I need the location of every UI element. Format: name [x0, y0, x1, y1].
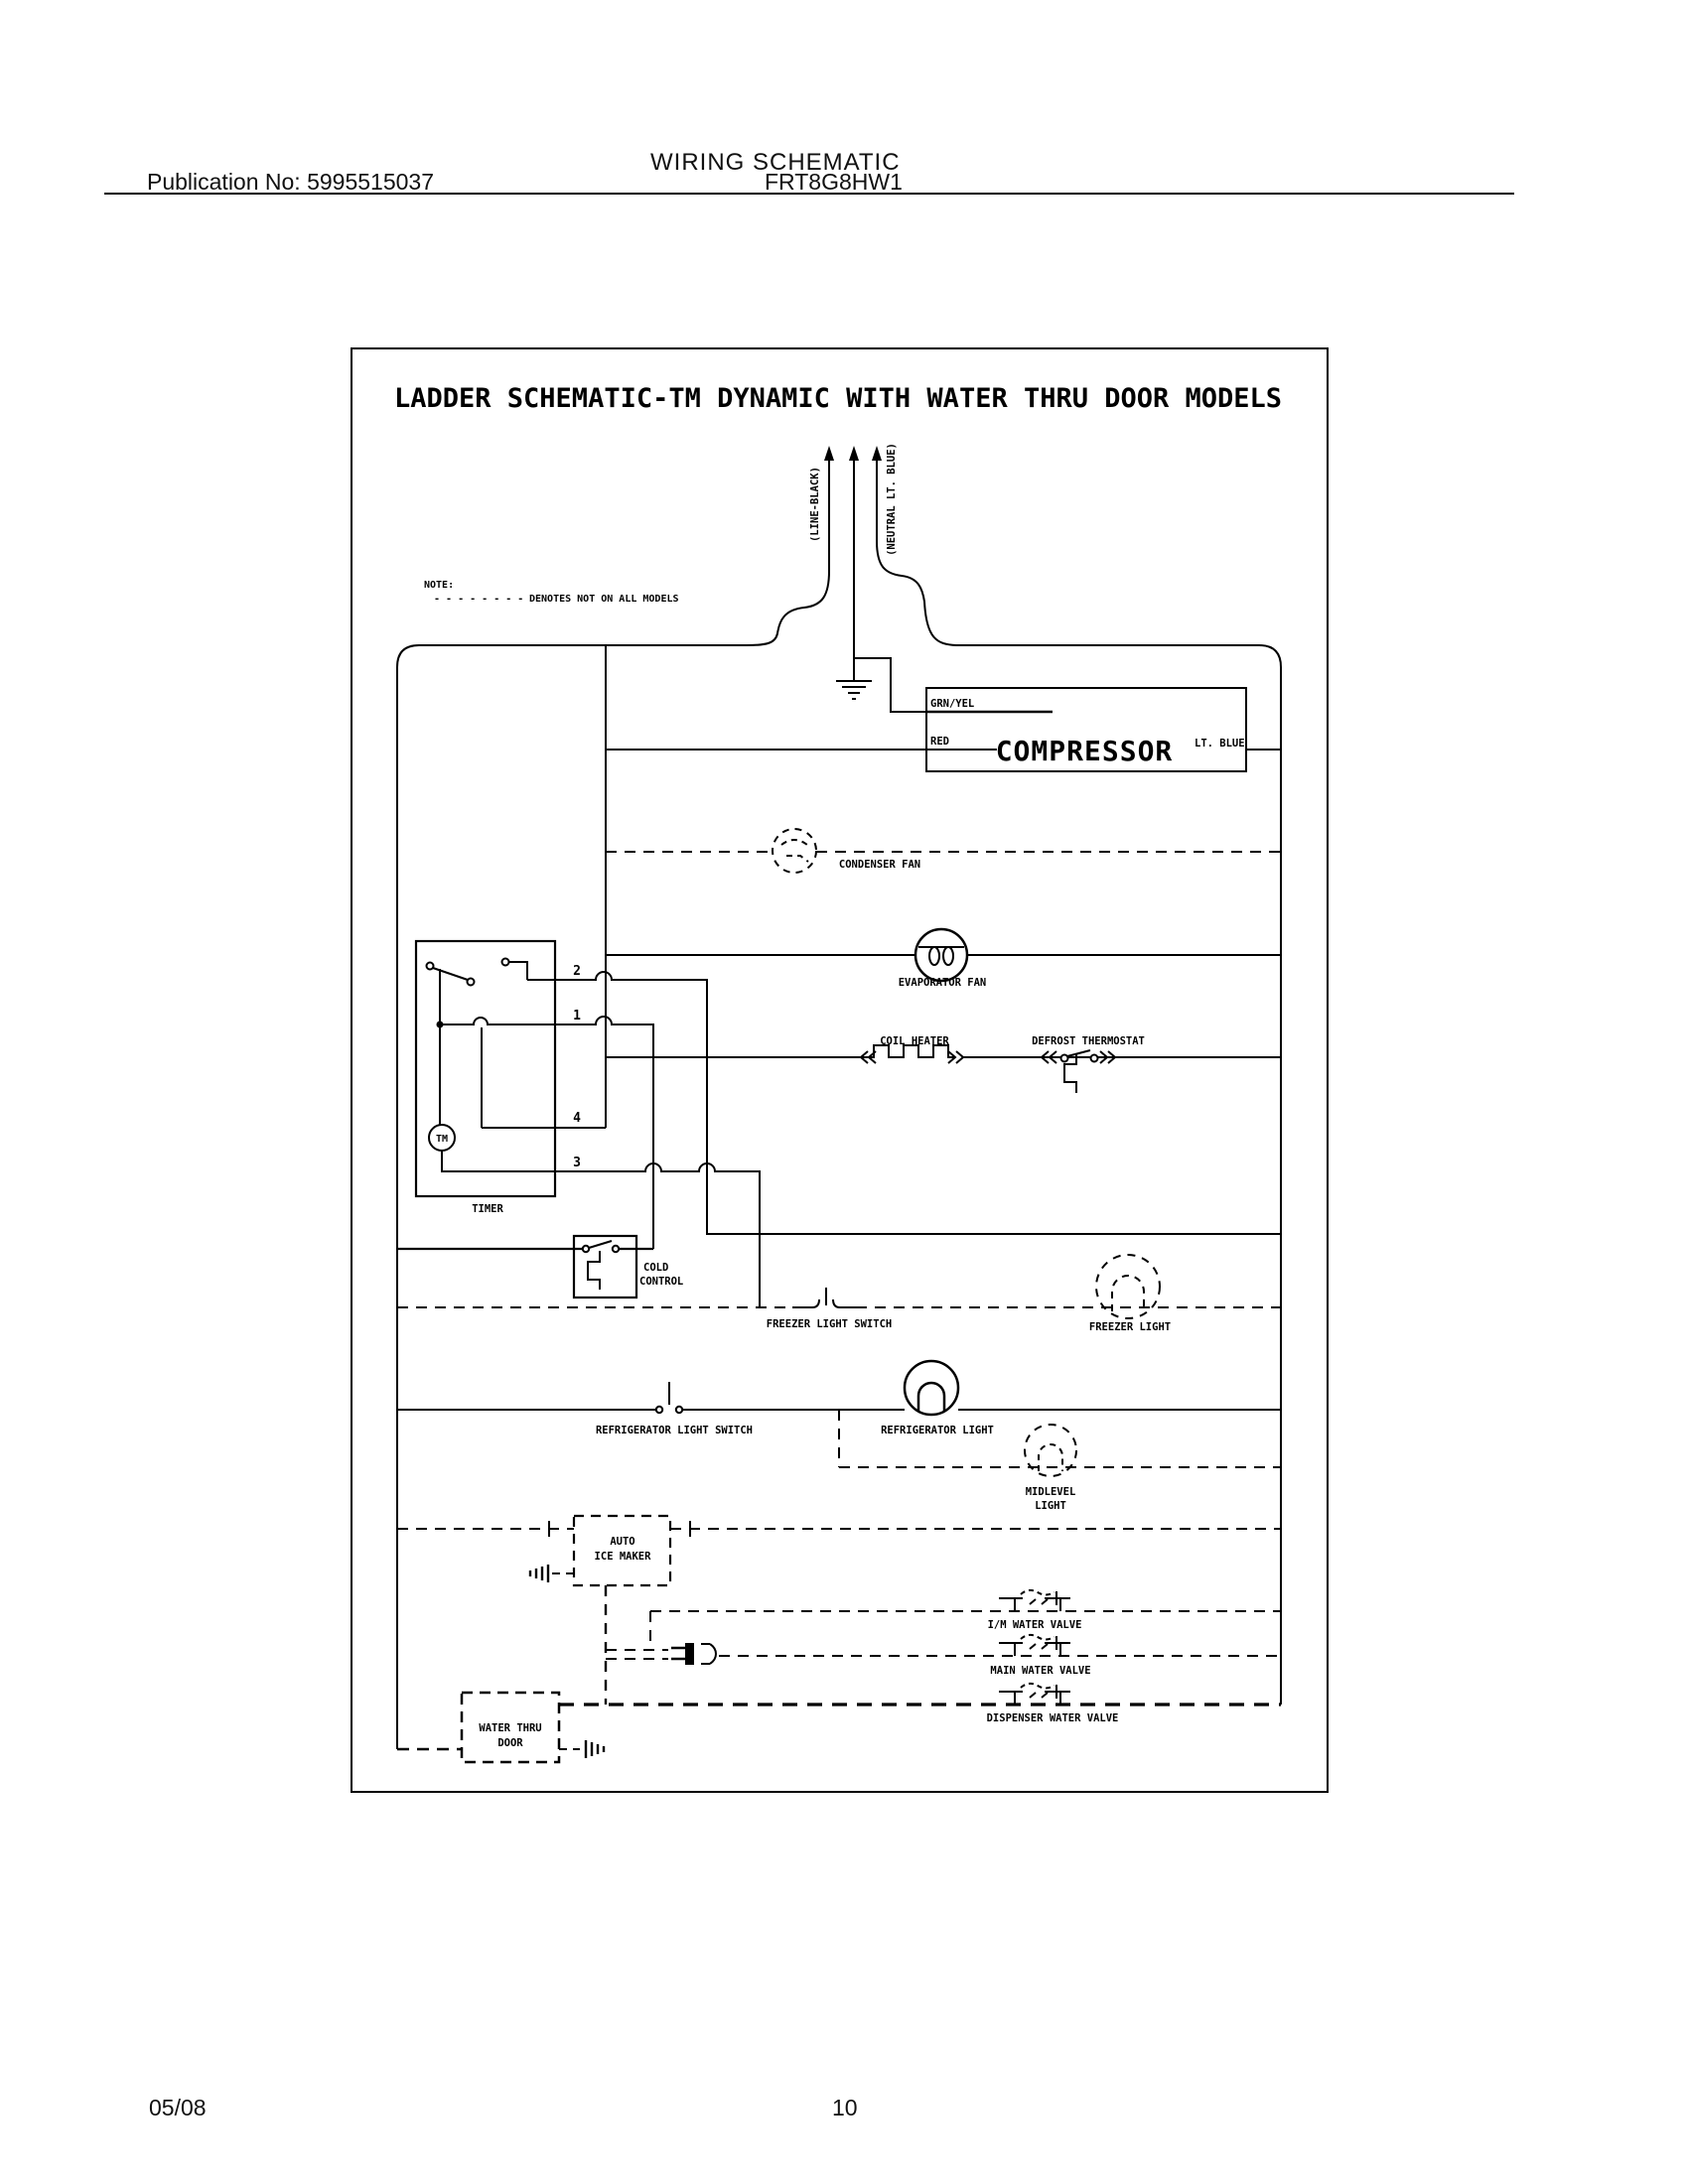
line-arrow-icon [824, 446, 834, 461]
coil-heater-symbol-icon [860, 1045, 963, 1063]
auto-ice-maker-label-1: AUTO [610, 1536, 634, 1548]
freezer-light-switch-symbol-icon [792, 1288, 856, 1307]
timer-terminal-4: 4 [573, 1111, 581, 1126]
ice-maker-ground-icon [530, 1565, 574, 1582]
refrigerator-light-switch-label: REFRIGERATOR LIGHT SWITCH [596, 1425, 753, 1436]
main-water-valve-coil-icon [999, 1635, 1070, 1656]
freezer-light-label: FREEZER LIGHT [1089, 1321, 1171, 1333]
water-thru-door-label-1: WATER THRU [479, 1722, 541, 1734]
schematic-title: LADDER SCHEMATIC-TM DYNAMIC WITH WATER T… [394, 383, 1282, 414]
compressor-red-label: RED [930, 736, 949, 748]
power-arrows [824, 446, 882, 461]
manual-page: { "header": { "publication": "Publicatio… [0, 0, 1688, 2184]
freezer-light-symbol-icon [1096, 1255, 1160, 1318]
water-thru-door-label-2: DOOR [497, 1737, 523, 1749]
dispenser-water-valve-label: DISPENSER WATER VALVE [987, 1712, 1119, 1724]
condenser-fan-symbol-icon [773, 829, 816, 873]
line-black-label: (LINE-BLACK) [809, 467, 821, 542]
evaporator-fan-symbol-icon [915, 929, 967, 981]
refrigerator-light-symbol-icon [905, 1361, 958, 1415]
im-water-valve-coil-icon [999, 1590, 1070, 1611]
timer-terminal-3: 3 [573, 1156, 581, 1170]
freezer-light-switch-label: FREEZER LIGHT SWITCH [767, 1318, 892, 1330]
cold-control-label-2: CONTROL [639, 1276, 683, 1288]
condenser-fan-label: CONDENSER FAN [839, 859, 920, 871]
refrigerator-light-label: REFRIGERATOR LIGHT [881, 1425, 994, 1436]
timer-block: TM 2 1 4 3 TIMER [416, 941, 1281, 1307]
footer-date: 05/08 [149, 2095, 207, 2121]
ground-line-arrow-icon [849, 446, 859, 461]
ground-symbol-icon [836, 681, 872, 699]
power-entry-wires [397, 459, 1281, 1749]
timer-terminal-1: 1 [573, 1009, 581, 1024]
refrigerator-light-switch-symbol-icon [656, 1382, 682, 1413]
neutral-arrow-icon [872, 446, 882, 461]
cold-control-block: COLD CONTROL [397, 1236, 683, 1297]
midlevel-light-label-2: LIGHT [1035, 1500, 1066, 1512]
dispenser-water-valve-coil-icon [999, 1684, 1070, 1705]
note-text: DENOTES NOT ON ALL MODELS [529, 594, 679, 605]
cold-control-label-1: COLD [643, 1262, 668, 1274]
timer-label: TIMER [472, 1203, 503, 1215]
defrost-thermostat-label: DEFROST THERMOSTAT [1032, 1035, 1145, 1047]
note-label: NOTE: [424, 580, 454, 591]
evaporator-fan-label: EVAPORATOR FAN [899, 977, 987, 989]
wiring-schematic: LADDER SCHEMATIC-TM DYNAMIC WITH WATER T… [351, 347, 1329, 1793]
junction-dot [437, 1022, 444, 1028]
compressor-block: GRN/YEL RED COMPRESSOR LT. BLUE [926, 688, 1246, 771]
compressor-label: COMPRESSOR [996, 735, 1174, 767]
water-thru-door-ground-icon [586, 1740, 604, 1758]
compressor-grnyel-label: GRN/YEL [930, 698, 974, 710]
timer-motor-label: TM [436, 1134, 448, 1145]
water-valve-rows: I/M WATER VALVE MAIN WATER VALVE DISPENS… [559, 1590, 1281, 1724]
harness-connector-icon [671, 1643, 716, 1665]
auto-ice-maker-label-2: ICE MAKER [595, 1551, 652, 1563]
header-rule [104, 193, 1514, 195]
midlevel-light-label-1: MIDLEVEL [1026, 1486, 1076, 1498]
im-water-valve-label: I/M WATER VALVE [988, 1619, 1082, 1631]
note-dash-sample: - - - - - - - - [434, 594, 523, 605]
publication-number: Publication No: 5995515037 [147, 169, 434, 196]
neutral-lt-blue-label: (NEUTRAL LT. BLUE) [886, 443, 898, 556]
main-water-valve-label: MAIN WATER VALVE [990, 1665, 1090, 1677]
coil-heater-label: COIL HEATER [880, 1035, 949, 1047]
compressor-ltblue-label: LT. BLUE [1195, 738, 1245, 750]
footer-page-number: 10 [832, 2095, 858, 2121]
page-title: WIRING SCHEMATIC [650, 149, 901, 177]
timer-terminal-2: 2 [573, 964, 581, 979]
midlevel-light-symbol-icon [1025, 1425, 1076, 1476]
note-block: NOTE: - - - - - - - - DENOTES NOT ON ALL… [424, 580, 679, 605]
